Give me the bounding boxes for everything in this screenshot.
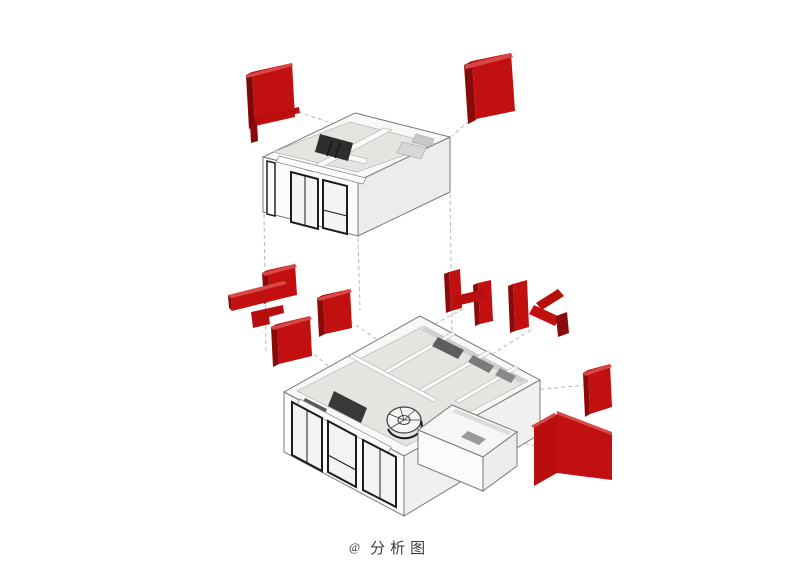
- figure-caption: @ 分析图: [349, 537, 430, 558]
- spiral-staircase: [387, 407, 422, 438]
- red-partition-panel: [317, 289, 352, 337]
- panel-leg: [250, 122, 258, 143]
- k-arm-end: [556, 312, 569, 337]
- k-slab-face: [513, 280, 529, 331]
- k-arm-upper: [536, 289, 564, 310]
- red-wall-panel-left: [246, 63, 300, 143]
- exploded-axonometric-drawing: [0, 0, 800, 571]
- red-corner-walls: [531, 411, 612, 486]
- first-floor-volume: [284, 316, 540, 516]
- h-right-face: [478, 280, 493, 324]
- red-frame-h: [444, 269, 493, 326]
- dash-drop-east: [450, 194, 452, 332]
- red-frame-k: [508, 280, 569, 337]
- dash-drop-south: [358, 238, 360, 310]
- upper-window-frame-left: [267, 161, 275, 216]
- dash-upper-right: [452, 121, 469, 136]
- red-wall-panel-right: [464, 53, 515, 124]
- second-floor-volume: [263, 113, 450, 236]
- red-furniture-cluster: [228, 264, 312, 367]
- red-wall-panel-east: [583, 364, 612, 417]
- caption-marker-icon: @: [349, 540, 360, 555]
- upper-window: [323, 180, 347, 234]
- analysis-diagram-page: @ 分析图: [0, 0, 800, 571]
- caption-text: 分析图: [370, 537, 430, 558]
